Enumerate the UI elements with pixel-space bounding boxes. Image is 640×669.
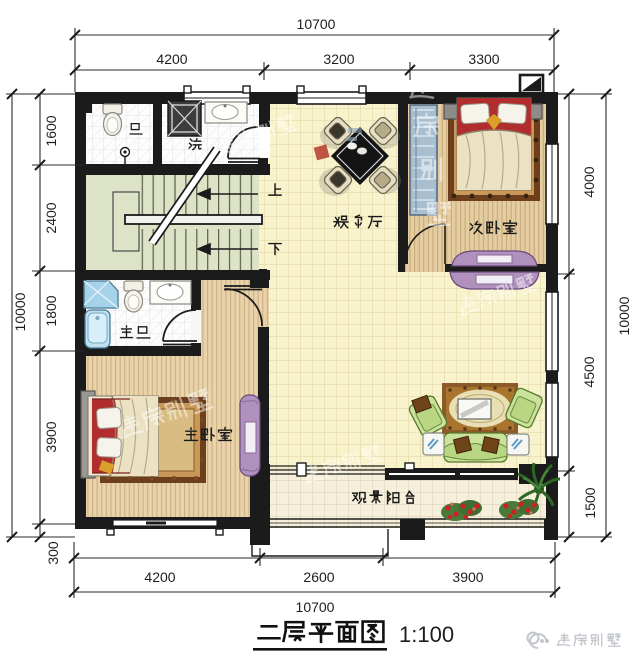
- svg-text:4000: 4000: [581, 166, 597, 197]
- svg-text:10700: 10700: [297, 16, 336, 32]
- svg-text:3200: 3200: [323, 51, 354, 67]
- svg-text:2600: 2600: [303, 569, 334, 585]
- svg-text:3900: 3900: [43, 421, 59, 452]
- svg-text:1600: 1600: [43, 115, 59, 146]
- svg-text:1:100: 1:100: [399, 622, 454, 647]
- svg-text:1800: 1800: [43, 295, 59, 326]
- svg-text:4200: 4200: [156, 51, 187, 67]
- svg-text:10700: 10700: [296, 599, 335, 615]
- svg-text:2400: 2400: [43, 202, 59, 233]
- svg-text:1500: 1500: [582, 487, 598, 518]
- svg-text:300: 300: [45, 541, 61, 565]
- svg-text:4200: 4200: [144, 569, 175, 585]
- svg-text:3900: 3900: [452, 569, 483, 585]
- svg-text:10000: 10000: [12, 292, 28, 331]
- svg-text:3300: 3300: [468, 51, 499, 67]
- svg-text:4500: 4500: [581, 356, 597, 387]
- svg-text:10000: 10000: [616, 296, 632, 335]
